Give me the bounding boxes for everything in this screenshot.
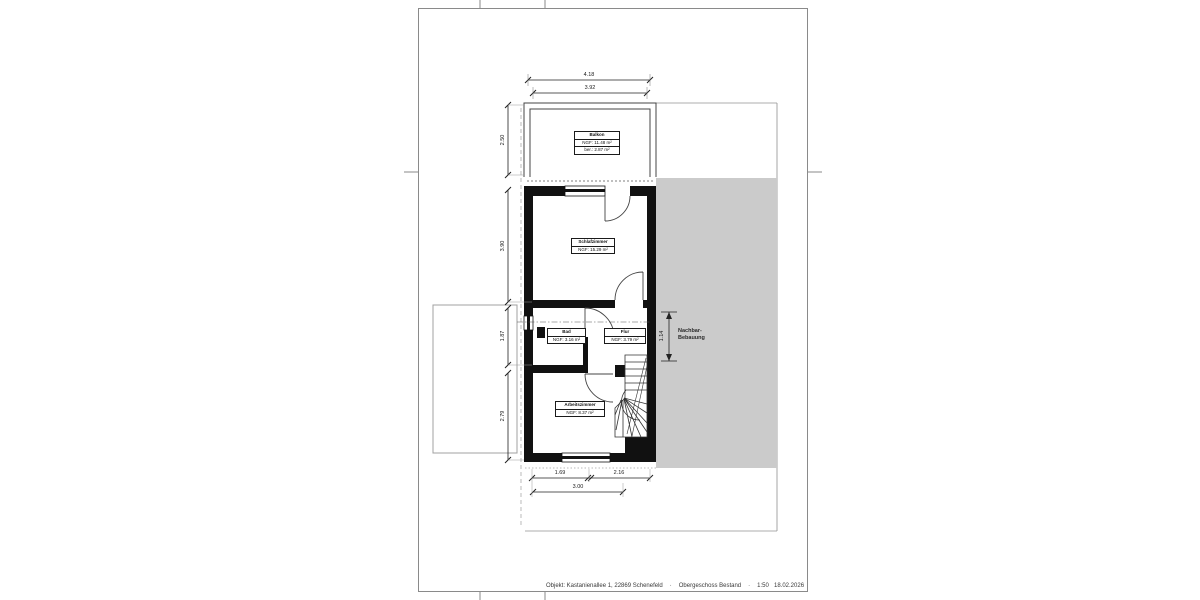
dim-bottom-right: 2.16 bbox=[614, 470, 625, 476]
dim-right-offset: 1.14 bbox=[659, 331, 665, 342]
room-name: Schlafzimmer bbox=[572, 239, 614, 247]
study-door bbox=[585, 374, 613, 402]
dim-left-bath: 1.87 bbox=[500, 331, 506, 342]
room-area: NGF: 8.37 m² bbox=[556, 410, 604, 417]
footer-separator: · bbox=[670, 583, 672, 589]
neighbor-building-area bbox=[656, 178, 777, 468]
room-label-flur: Flur NGF: 3.79 m² bbox=[604, 328, 646, 344]
room-name: Arbeitszimmer bbox=[556, 402, 604, 410]
room-area: NGF: 3.16 m² bbox=[548, 337, 585, 344]
title-block: Objekt: Kastanienallee 1, 22869 Schenefe… bbox=[546, 583, 769, 589]
footer-date: 18.02.2026 bbox=[774, 583, 804, 589]
neighbor-label-line2: Bebauung bbox=[678, 335, 705, 342]
neighbor-label: Nachbar- Bebauung bbox=[678, 328, 705, 341]
room-label-bad: Bad NGF: 3.16 m² bbox=[547, 328, 586, 344]
room-label-schlafzimmer: Schlafzimmer NGF: 15.29 m² bbox=[571, 238, 615, 254]
footer-scale: 1:50 bbox=[757, 583, 769, 589]
dim-top-outer: 4.18 bbox=[584, 72, 595, 78]
neighbor-label-line1: Nachbar- bbox=[678, 328, 705, 335]
dim-left-study: 2.79 bbox=[500, 411, 506, 422]
dim-bottom-left: 1.69 bbox=[555, 470, 566, 476]
room-area-counted: ber.: 2.87 m² bbox=[575, 147, 619, 154]
floor-plan-page: Balkon NGF: 11.48 m² ber.: 2.87 m² Schla… bbox=[0, 0, 1200, 600]
footer-project: Objekt: Kastanienallee 1, 22869 Schenefe… bbox=[546, 583, 663, 589]
dim-top-inner: 3.92 bbox=[585, 85, 596, 91]
room-name: Flur bbox=[605, 329, 645, 337]
plan-drawing bbox=[0, 0, 1200, 600]
bedroom-door bbox=[615, 272, 643, 300]
dim-left-bedroom: 3.90 bbox=[500, 241, 506, 252]
room-label-balkon: Balkon NGF: 11.48 m² ber.: 2.87 m² bbox=[574, 131, 620, 155]
dim-bottom-total: 3.00 bbox=[573, 484, 584, 490]
room-area: NGF: 3.79 m² bbox=[605, 337, 645, 344]
room-label-arbeitszimmer: Arbeitszimmer NGF: 8.37 m² bbox=[555, 401, 605, 417]
garage-outline bbox=[433, 305, 517, 453]
footer-drawing-title: Obergeschoss Bestand bbox=[679, 583, 741, 589]
dim-left-balcony: 2.50 bbox=[500, 135, 506, 146]
windows bbox=[524, 186, 610, 462]
balcony-door bbox=[605, 196, 630, 221]
footer-separator: · bbox=[748, 583, 750, 589]
room-area: NGF: 15.29 m² bbox=[572, 247, 614, 254]
room-name: Balkon bbox=[575, 132, 619, 140]
room-name: Bad bbox=[548, 329, 585, 337]
room-area: NGF: 11.48 m² bbox=[575, 140, 619, 148]
